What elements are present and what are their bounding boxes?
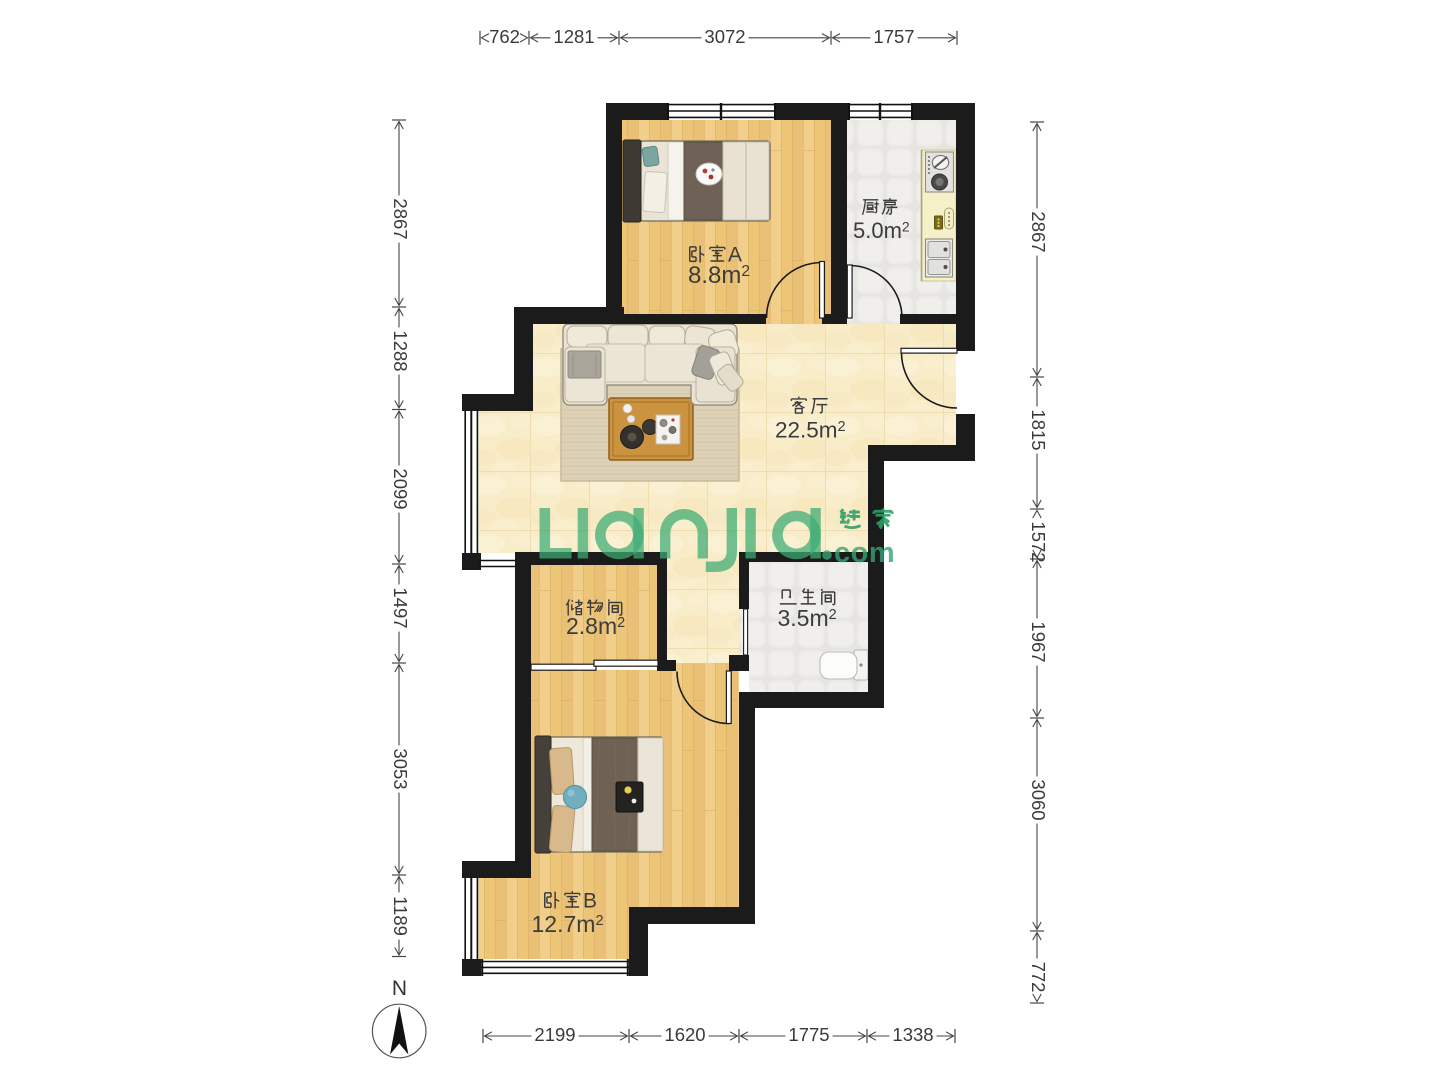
- svg-text:B: B: [583, 890, 597, 913]
- svg-text:1497: 1497: [390, 587, 411, 628]
- svg-text:2867: 2867: [1028, 211, 1049, 252]
- svg-text:1757: 1757: [873, 26, 914, 47]
- svg-text:3060: 3060: [1028, 779, 1049, 820]
- svg-text:2099: 2099: [390, 468, 411, 509]
- svg-text:1775: 1775: [788, 1024, 829, 1045]
- svg-text:1967: 1967: [1028, 621, 1049, 662]
- svg-text:8.8m2: 8.8m2: [688, 262, 750, 289]
- svg-text:1189: 1189: [390, 896, 411, 936]
- svg-text:1815: 1815: [1028, 409, 1049, 450]
- svg-text:1281: 1281: [553, 26, 594, 47]
- svg-text:2.8m2: 2.8m2: [566, 613, 625, 639]
- svg-text:3.5m2: 3.5m2: [778, 605, 837, 631]
- svg-text:22.5m2: 22.5m2: [775, 418, 846, 443]
- svg-text:1288: 1288: [390, 330, 411, 371]
- svg-text:1338: 1338: [892, 1024, 933, 1045]
- svg-text:5.0m2: 5.0m2: [853, 218, 910, 243]
- svg-text:2199: 2199: [534, 1024, 575, 1045]
- svg-text:3072: 3072: [704, 26, 745, 47]
- svg-text:762: 762: [489, 26, 520, 47]
- svg-text:3053: 3053: [390, 748, 411, 789]
- svg-text:com: com: [834, 537, 895, 569]
- svg-text:12.7m2: 12.7m2: [532, 911, 604, 937]
- svg-text:N: N: [392, 977, 407, 1000]
- svg-text:1620: 1620: [664, 1024, 705, 1045]
- svg-text:2867: 2867: [390, 198, 411, 239]
- svg-text:1572: 1572: [1028, 521, 1049, 562]
- svg-text:772: 772: [1028, 962, 1049, 993]
